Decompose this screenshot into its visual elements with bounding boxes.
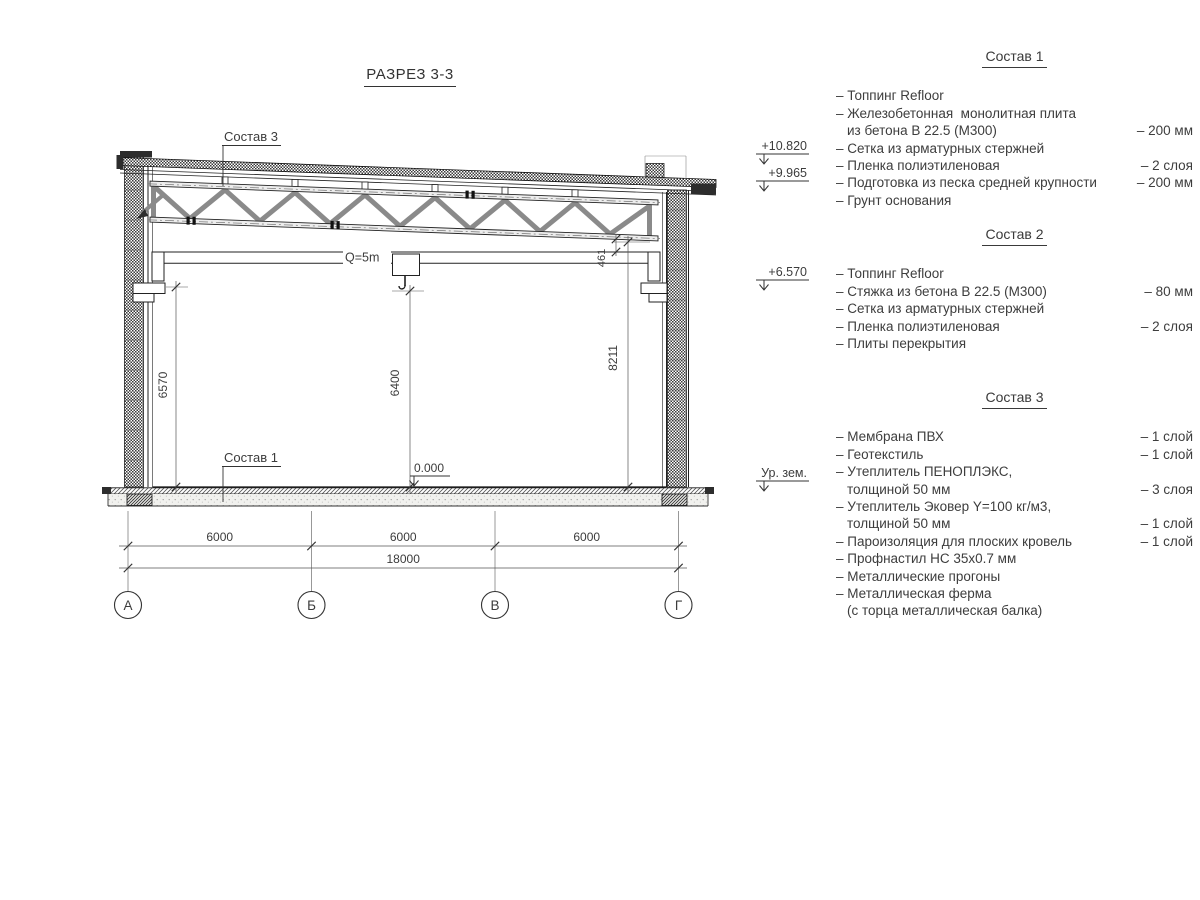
foundation-right — [662, 494, 687, 506]
item-text: – Пленка полиэтиленовая — [836, 318, 1000, 335]
item-text: – Сетка из арматурных стержней — [836, 300, 1044, 317]
item-value: – 200 мм — [1129, 122, 1193, 139]
composition-title-text: Состав 1 — [982, 48, 1046, 68]
callout-floor-composition: Состав 1 — [224, 450, 278, 465]
elevation-crane-rail: +6.570 — [768, 265, 807, 279]
elevation-roof-low: +9.965 — [768, 166, 807, 180]
item-value: – 2 слоя — [1133, 157, 1193, 174]
left-parapet-cap — [120, 151, 152, 158]
dim-span-1: 6000 — [206, 530, 233, 544]
foundation-left — [127, 494, 152, 506]
item-text: – Подготовка из песка средней крупности — [836, 174, 1097, 191]
crane-end-truck-left — [152, 252, 164, 281]
composition-title: Состав 2 — [836, 226, 1193, 246]
list-item: – Мембрана ПВХ– 1 слой — [836, 428, 1193, 445]
dim-total: 18000 — [387, 552, 421, 566]
list-item: – Профнастил НС 35х0.7 мм — [836, 550, 1193, 567]
list-item: – Сетка из арматурных стержней — [836, 300, 1193, 317]
item-value: – 3 слоя — [1133, 481, 1193, 498]
item-text: – Стяжка из бетона В 22.5 (М300) — [836, 283, 1047, 300]
list-item: – Металлические прогоны — [836, 568, 1193, 585]
axis-c: В — [490, 598, 499, 613]
composition-title: Состав 3 — [836, 389, 1193, 409]
item-text: (с торца металлическая балка) — [836, 602, 1042, 619]
list-item: – Грунт основания — [836, 192, 1193, 209]
item-value: – 1 слой — [1133, 533, 1193, 550]
sand-layer — [108, 494, 708, 506]
dim-span-3: 6000 — [573, 530, 600, 544]
composition-list-1: Состав 1 – Топпинг Refloor – Железобетон… — [836, 48, 1193, 209]
crane-capacity-label: Q=5m — [345, 251, 379, 265]
dim-span-2: 6000 — [390, 530, 417, 544]
item-value: – 1 слой — [1133, 515, 1193, 532]
list-item: толщиной 50 мм– 1 слой — [836, 515, 1193, 532]
axis-a: А — [123, 598, 132, 613]
list-item: – Пленка полиэтиленовая– 2 слоя — [836, 318, 1193, 335]
composition-list-2: Состав 2 – Топпинг Refloor – Стяжка из б… — [836, 226, 1193, 352]
list-item: – Геотекстиль– 1 слой — [836, 446, 1193, 463]
roof-right-edge-cap — [691, 184, 716, 195]
item-text: – Пленка полиэтиленовая — [836, 157, 1000, 174]
axis-bubbles: А Б В Г — [115, 592, 693, 619]
item-value: – 80 мм — [1136, 283, 1193, 300]
section-title-text: РАЗРЕЗ 3-3 — [364, 66, 456, 87]
elevation-marks: +10.820 +9.965 +6.570 Ур. зем. — [756, 139, 809, 491]
page-title: РАЗРЕЗ 3-3 — [340, 66, 480, 87]
item-text: – Металлические прогоны — [836, 568, 1000, 585]
crane-trolley — [393, 254, 420, 276]
composition-title: Состав 1 — [836, 48, 1193, 68]
item-text: – Топпинг Refloor — [836, 265, 944, 282]
list-item: (с торца металлическая балка) — [836, 602, 1193, 619]
list-item: – Пароизоляция для плоских кровель– 1 сл… — [836, 533, 1193, 550]
crane-rail-corbel-right — [641, 283, 667, 294]
item-text: – Профнастил НС 35х0.7 мм — [836, 550, 1016, 567]
floor-slab — [102, 487, 714, 506]
list-item: – Утеплитель Эковер Y=100 кг/м3, — [836, 498, 1193, 515]
list-item: толщиной 50 мм– 3 слоя — [836, 481, 1193, 498]
horizontal-dimensions: 6000 6000 6000 18000 — [119, 511, 687, 591]
right-parapet-block — [646, 164, 664, 178]
item-text: – Плиты перекрытия — [836, 335, 966, 352]
list-item: – Пленка полиэтиленовая– 2 слоя — [836, 157, 1193, 174]
right-wall — [646, 164, 689, 488]
left-wall — [120, 151, 153, 487]
list-item: – Стяжка из бетона В 22.5 (М300)– 80 мм — [836, 283, 1193, 300]
overhead-crane: Q=5m — [133, 251, 667, 303]
drawing-sheet: Q=5m 6570 6400 — [0, 0, 1200, 900]
dim-hook-height: 6400 — [388, 369, 402, 396]
composition-title-text: Состав 2 — [982, 226, 1046, 246]
callout-roof-composition: Состав 3 — [224, 129, 278, 144]
item-text: – Топпинг Refloor — [836, 87, 944, 104]
list-item: – Сетка из арматурных стержней — [836, 140, 1193, 157]
list-item: из бетона В 22.5 (М300)– 200 мм — [836, 122, 1193, 139]
roof-assembly — [117, 155, 717, 195]
item-value: – 200 мм — [1129, 174, 1193, 191]
zero-level-mark: 0.000 — [410, 461, 451, 486]
dim-right-height: 8211 — [606, 345, 620, 371]
axis-d: Г — [675, 598, 683, 613]
crane-end-truck-right — [648, 252, 660, 281]
item-text: толщиной 50 мм — [836, 481, 950, 498]
dim-left-height: 6570 — [156, 371, 170, 398]
composition-list-3: Состав 3 – Мембрана ПВХ– 1 слой – Геотек… — [836, 389, 1193, 620]
item-text: – Железобетонная монолитная плита — [836, 105, 1076, 122]
item-text: – Геотекстиль — [836, 446, 923, 463]
crane-rail-corbel-left — [133, 283, 165, 294]
list-item: – Утеплитель ПЕНОПЛЭКС, — [836, 463, 1193, 480]
item-text: – Пароизоляция для плоских кровель — [836, 533, 1072, 550]
item-text: из бетона В 22.5 (М300) — [836, 122, 997, 139]
axis-b: Б — [307, 598, 316, 613]
list-item: – Топпинг Refloor — [836, 265, 1193, 282]
roof-left-edge-cap — [117, 155, 124, 169]
item-text: – Утеплитель Эковер Y=100 кг/м3, — [836, 498, 1051, 515]
list-item: – Плиты перекрытия — [836, 335, 1193, 352]
crane-hook — [399, 285, 405, 289]
item-value: – 2 слоя — [1133, 318, 1193, 335]
item-value: – 1 слой — [1133, 428, 1193, 445]
list-item: – Металлическая ферма — [836, 585, 1193, 602]
item-text: – Мембрана ПВХ — [836, 428, 944, 445]
item-text: – Грунт основания — [836, 192, 951, 209]
list-item: – Топпинг Refloor — [836, 87, 1193, 104]
elevation-ground: Ур. зем. — [761, 466, 807, 480]
item-value: – 1 слой — [1133, 446, 1193, 463]
item-text: – Металлическая ферма — [836, 585, 992, 602]
list-item: – Железобетонная монолитная плита — [836, 105, 1193, 122]
item-text: – Сетка из арматурных стержней — [836, 140, 1044, 157]
dim-truss-gap: 461 — [596, 249, 608, 267]
elevation-parapet: +10.820 — [761, 139, 807, 153]
item-text: толщиной 50 мм — [836, 515, 950, 532]
composition-title-text: Состав 3 — [982, 389, 1046, 409]
item-text: – Утеплитель ПЕНОПЛЭКС, — [836, 463, 1012, 480]
list-item: – Подготовка из песка средней крупности–… — [836, 174, 1193, 191]
svg-text:0.000: 0.000 — [414, 461, 444, 475]
